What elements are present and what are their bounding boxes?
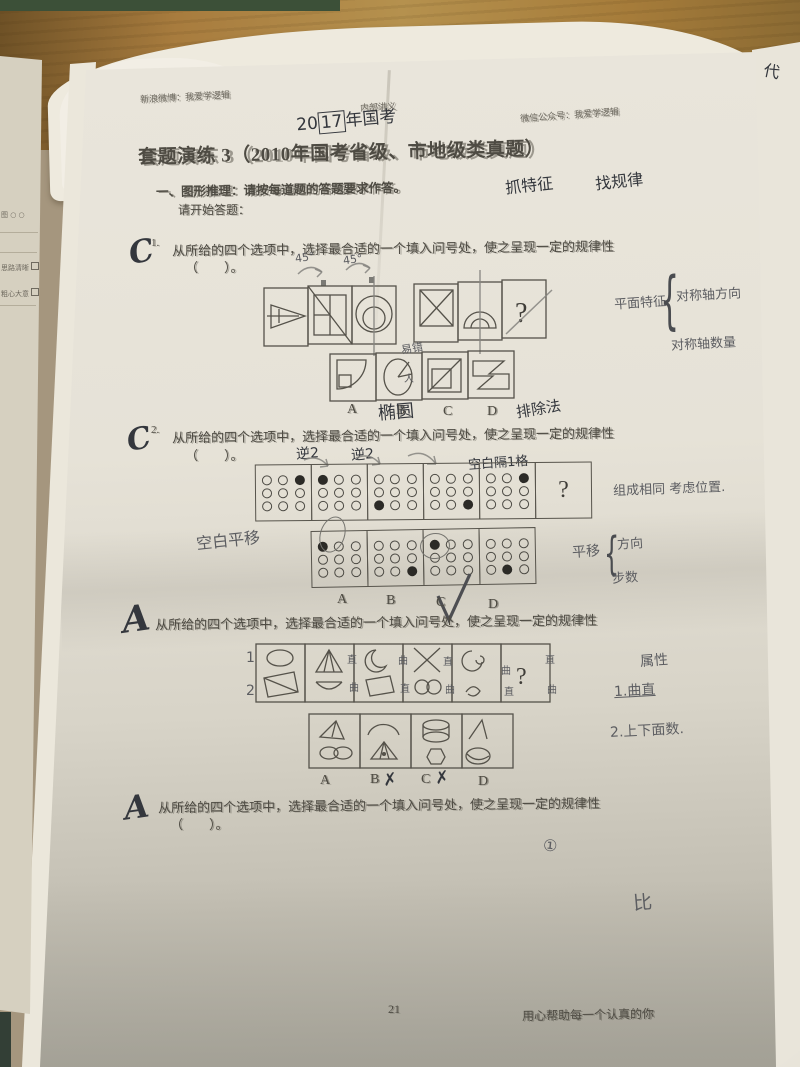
stroke-mark: 曲 <box>349 679 359 694</box>
filled-dot <box>407 566 417 576</box>
year-prefix: 20 <box>296 114 319 136</box>
q1-note-person: 人 <box>404 370 414 385</box>
hollow-dot <box>502 551 512 561</box>
hollow-dot <box>463 552 473 562</box>
hollow-dot <box>407 540 417 550</box>
hollow-dot <box>335 500 345 510</box>
hollow-dot <box>374 474 384 484</box>
q2-right-label: 平移 <box>571 540 600 562</box>
q4-text: 从所给的四个选项中，选择最合适的一个填入问号处，使之呈现一定的规律性 <box>158 793 600 817</box>
ellipse-sector-icon <box>376 353 422 400</box>
filled-dot <box>295 475 305 485</box>
main-test-paper: 新浪微博：我爱学逻辑 内部讲义 微信公众号：我爱学逻辑 套题演练 3（2010年… <box>0 0 800 1067</box>
q4-brackets: （ ）。 <box>170 814 229 833</box>
filled-dot <box>519 473 529 483</box>
stroke-mark: 直 <box>504 683 514 698</box>
hollow-dot <box>374 487 384 497</box>
section-heading: 一、图形推理：请按每道题的答题要求作答。 <box>156 177 406 200</box>
spiral-and-curl-icon <box>452 644 501 702</box>
q1-note-ellipse: 椭圆 <box>377 396 415 425</box>
q3-options-row <box>306 711 518 771</box>
arc-and-triangle-icon <box>360 714 411 768</box>
q1-right-item-1: 对称轴方向 <box>676 282 742 304</box>
hollow-dot <box>318 487 328 497</box>
hollow-dot <box>407 500 417 510</box>
hollow-dot <box>390 487 400 497</box>
hollow-dot <box>430 499 440 509</box>
year-suffix: 年国考 <box>345 107 398 131</box>
hollow-dot <box>390 540 400 550</box>
q2-figure-row: ? <box>256 462 592 522</box>
hollow-dot <box>391 566 401 576</box>
q3-right-item-2: 2.上下面数. <box>610 718 685 742</box>
hollow-dot <box>278 475 288 485</box>
start-prompt: 请开始答题： <box>178 201 250 218</box>
stroke-mark: 曲 <box>501 662 511 677</box>
q3-right-item-1: 1.曲直 <box>614 679 656 701</box>
hollow-dot <box>351 541 361 551</box>
q2-right-item-1: 方向 <box>616 532 643 553</box>
dot-grid <box>255 464 312 521</box>
q2-option-label-c: C <box>436 595 445 611</box>
hollow-dot <box>486 473 496 483</box>
hollow-dot <box>390 553 400 563</box>
crescent-and-parallelogram-icon <box>354 644 403 702</box>
hollow-dot <box>351 567 361 577</box>
stroke-mark: 直 <box>443 653 453 668</box>
checkbox-icon <box>31 288 39 296</box>
filled-dot <box>463 499 473 509</box>
tip-grab-features: 抓特征 <box>504 170 554 199</box>
stroke-mark: 直 <box>545 651 555 666</box>
hollow-dot <box>334 474 344 484</box>
hollow-dot <box>463 486 473 496</box>
hollow-dot <box>334 554 344 564</box>
hollow-dot <box>519 551 529 561</box>
hollow-dot <box>407 553 417 563</box>
hollow-dot <box>518 538 528 548</box>
dot-grid <box>423 463 480 520</box>
q1-option-label-c: C <box>443 404 452 420</box>
dome-half-circle-icon <box>458 270 502 354</box>
hollow-dot <box>462 539 472 549</box>
q2-brackets: （ ）。 <box>185 445 244 464</box>
q4-margin-answer: A <box>121 786 151 827</box>
hollow-dot <box>262 501 272 511</box>
q1-right-label: 平面特征 <box>613 290 666 313</box>
page-number: 21 <box>388 1002 400 1017</box>
q2-number: 2. <box>151 424 159 436</box>
hollow-dot <box>503 499 513 509</box>
hollow-dot <box>374 540 384 550</box>
hollow-dot <box>390 474 400 484</box>
watermark-weibo: 新浪微博：我爱学逻辑 <box>140 88 231 106</box>
hollow-dot <box>486 499 496 509</box>
photo-of-test-paper: 图 ○ ○ 思路清晰 粗心大意 …藏的一言一语 代 新浪微博：我爱学逻辑 内部讲… <box>0 0 800 1067</box>
q2-text: 从所给的四个选项中，选择最合适的一个填入问号处，使之呈现一定的规律性 <box>172 423 614 447</box>
hollow-dot <box>318 500 328 510</box>
hollow-dot <box>407 487 417 497</box>
hollow-dot <box>318 554 328 564</box>
q2-option-label-a: A <box>337 592 347 608</box>
q3-cross-b: ✗ <box>382 769 399 791</box>
q1-option-label-d: D <box>487 404 497 420</box>
dot-grid <box>311 463 368 520</box>
notebook-line-2: 思路清晰 <box>1 262 39 273</box>
tip-find-rule: 找规律 <box>594 166 644 195</box>
hollow-dot <box>446 486 456 496</box>
q1-right-item-2: 对称轴数量 <box>671 331 737 353</box>
q2-right-item-2: 步数 <box>611 566 638 587</box>
q3-option-label-c: C <box>421 772 430 788</box>
triangle-and-infinity-icon <box>309 714 360 768</box>
hollow-dot <box>351 487 361 497</box>
hollow-dot <box>262 475 272 485</box>
hollow-dot <box>351 500 361 510</box>
quarter-circle-icon <box>330 354 376 401</box>
q3-option-label-b: B <box>370 772 379 788</box>
footer-slogan: 用心帮助每一个认真的你 <box>522 1005 654 1024</box>
hollow-dot <box>447 499 457 509</box>
notebook-line-3-text: 粗心大意 <box>1 290 29 298</box>
hollow-dot <box>391 500 401 510</box>
stroke-mark: 曲 <box>398 652 408 667</box>
q3-right-title: 属性 <box>639 649 668 671</box>
hollow-dot <box>519 564 529 574</box>
hollow-dot <box>502 538 512 548</box>
hollow-dot <box>351 474 361 484</box>
hollow-dot <box>486 486 496 496</box>
filled-dot <box>374 500 384 510</box>
handwritten-year-note: 2017年国考 <box>295 102 397 136</box>
cylinder-and-hexagon-icon <box>411 714 462 768</box>
q2-right-note: 组成相同 考虑位置. <box>613 476 726 499</box>
q2-margin-answer: C <box>124 420 155 459</box>
green-corner-bottom <box>0 1012 11 1067</box>
hollow-dot <box>334 487 344 497</box>
stroke-mark: 曲 <box>445 681 455 696</box>
checkbox-icon <box>31 262 39 270</box>
dot-grid <box>478 527 536 585</box>
q1-note-exclude: 排除法 <box>515 395 563 423</box>
hollow-dot <box>486 538 496 548</box>
notebook-line-1: 图 ○ ○ <box>1 210 25 220</box>
notebook-line-2-text: 思路清晰 <box>1 264 29 272</box>
q4-circled-mark: ① <box>542 835 558 855</box>
stroke-mark: 直 <box>400 680 410 695</box>
dot-grid <box>479 462 536 519</box>
hollow-dot <box>502 473 512 483</box>
question-mark-box: ? <box>535 462 592 519</box>
hollow-dot <box>295 488 305 498</box>
q3-option-label-a: A <box>320 773 330 789</box>
triangle-with-line-icon <box>264 288 308 346</box>
square-diagonal-icon <box>308 286 352 344</box>
z-parallelogram-icon <box>468 351 514 398</box>
q1-option-label-a: A <box>347 402 357 418</box>
hollow-dot <box>446 552 456 562</box>
hollow-dot <box>407 474 417 484</box>
q2-option-label-b: B <box>386 593 395 609</box>
q3-margin-answer: A <box>119 596 153 641</box>
svg-text:?: ? <box>516 664 527 690</box>
hollow-dot <box>318 567 328 577</box>
q1-number: 1. <box>151 237 159 249</box>
q1-options-row <box>328 351 516 403</box>
hollow-dot <box>278 488 288 498</box>
hollow-dot <box>446 473 456 483</box>
hollow-dot <box>519 499 529 509</box>
filled-dot <box>318 474 328 484</box>
hollow-dot <box>463 473 473 483</box>
q3-option-label-d: D <box>478 774 488 790</box>
crossed-square-icon <box>414 284 458 342</box>
hollow-dot <box>519 486 529 496</box>
filled-dot <box>503 564 513 574</box>
dot-grid <box>367 463 424 520</box>
hollow-dot <box>295 501 305 511</box>
hollow-dot <box>430 473 440 483</box>
hollow-dot <box>374 566 384 576</box>
q4-scribble-mark: 比 <box>632 887 653 916</box>
hollow-dot <box>279 501 289 511</box>
angle-and-ellipse-icon <box>462 714 513 768</box>
ellipse-and-quad-icon <box>256 644 305 702</box>
q3-cross-c: ✗ <box>434 767 451 789</box>
notebook-line-3: 粗心大意 <box>1 288 39 299</box>
hollow-dot <box>486 564 496 574</box>
year-boxed: 17 <box>317 110 346 134</box>
hollow-dot <box>335 567 345 577</box>
square-diagonal-inner-square-icon <box>422 352 468 399</box>
hollow-dot <box>502 486 512 496</box>
q1-brackets: （ ）。 <box>185 257 244 276</box>
page-title: 套题演练 3（2010年国考省级、市地级类真题） <box>138 134 545 170</box>
hollow-dot <box>486 551 496 561</box>
circle-in-circle-icon <box>352 276 396 356</box>
hollow-dot <box>262 488 272 498</box>
pencil-slash-line <box>506 290 552 334</box>
stroke-mark: 曲 <box>547 681 557 696</box>
dot-grid <box>367 529 425 587</box>
hollow-dot <box>430 486 440 496</box>
stroke-mark: 直 <box>347 651 357 666</box>
hollow-dot <box>374 553 384 563</box>
hollow-dot <box>351 554 361 564</box>
green-table-edge <box>0 0 340 11</box>
watermark-wechat: 微信公众号：我爱学逻辑 <box>520 105 620 125</box>
question-mark-box: ? <box>502 280 552 338</box>
